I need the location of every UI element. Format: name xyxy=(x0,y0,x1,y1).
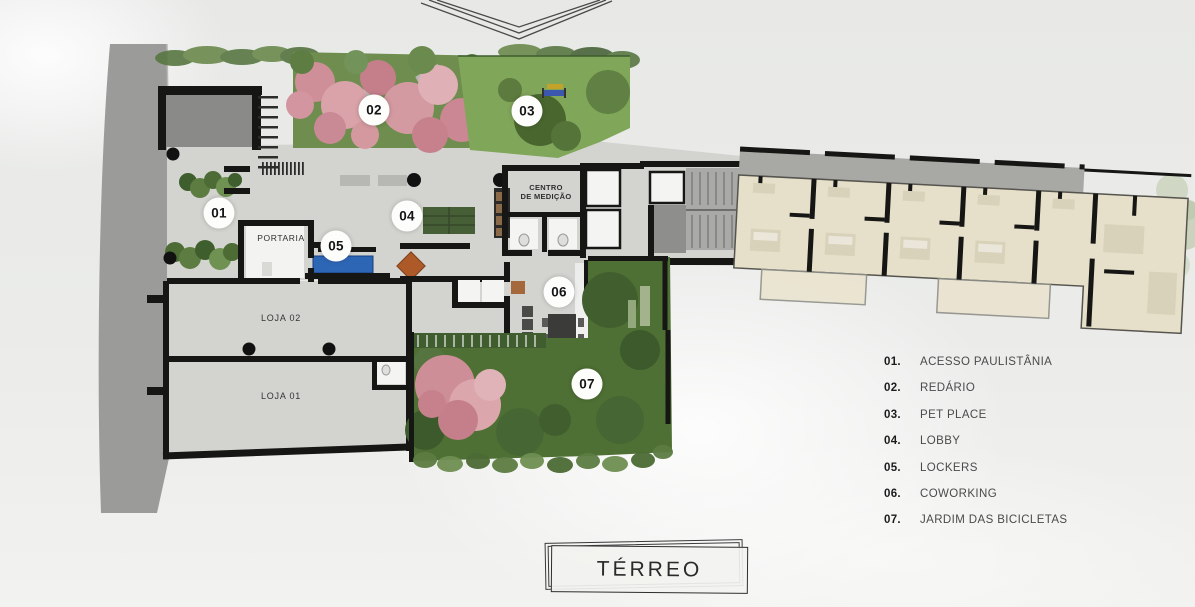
lobby-rug-icon xyxy=(423,207,475,234)
marker-03: 03 xyxy=(512,96,543,127)
portaria-label: PORTARIA xyxy=(257,233,304,243)
legend-label: LOCKERS xyxy=(920,462,978,474)
legend-item: 03. PET PLACE xyxy=(884,409,1068,435)
legend-item: 05. LOCKERS xyxy=(884,462,1068,488)
portaria-room xyxy=(238,220,314,282)
service-block xyxy=(158,86,262,150)
centro-medicao-line1: CENTRO xyxy=(521,183,572,192)
title-frame-inner: TÉRREO xyxy=(551,545,748,594)
legend-item: 07. JARDIM DAS BICICLETAS xyxy=(884,514,1068,540)
service-room xyxy=(372,359,406,390)
roof-outline-icon xyxy=(421,0,612,39)
legend-label: REDÁRIO xyxy=(920,382,975,394)
legend: 01. ACESSO PAULISTÂNIA 02. REDÁRIO 03. P… xyxy=(884,356,1068,541)
legend-item: 04. LOBBY xyxy=(884,435,1068,461)
centro-medicao-label: CENTRO DE MEDIÇÃO xyxy=(521,183,572,201)
legend-num: 05. xyxy=(884,462,920,474)
legend-label: JARDIM DAS BICICLETAS xyxy=(920,514,1068,526)
marker-07: 07 xyxy=(572,369,603,400)
loja01-label: LOJA 01 xyxy=(261,391,301,401)
legend-item: 02. REDÁRIO xyxy=(884,382,1068,408)
marker-02: 02 xyxy=(359,95,390,126)
centro-medicao-line2: DE MEDIÇÃO xyxy=(521,192,572,201)
legend-num: 04. xyxy=(884,435,920,447)
legend-num: 01. xyxy=(884,356,920,368)
loja02-label: LOJA 02 xyxy=(261,313,301,323)
legend-label: ACESSO PAULISTÂNIA xyxy=(920,356,1052,368)
floorplan-page: PORTARIA LOJA 02 LOJA 01 CENTRO DE MEDIÇ… xyxy=(0,0,1195,607)
legend-num: 07. xyxy=(884,514,920,526)
legend-item: 01. ACESSO PAULISTÂNIA xyxy=(884,356,1068,382)
legend-label: LOBBY xyxy=(920,435,960,447)
marker-01: 01 xyxy=(204,198,235,229)
legend-label: COWORKING xyxy=(920,488,997,500)
legend-num: 02. xyxy=(884,382,920,394)
marker-04: 04 xyxy=(392,201,423,232)
legend-num: 06. xyxy=(884,488,920,500)
floor-title-box: TÉRREO xyxy=(549,544,745,591)
marker-06: 06 xyxy=(544,277,575,308)
page-title: TÉRREO xyxy=(597,557,703,582)
legend-num: 03. xyxy=(884,409,920,421)
marker-05: 05 xyxy=(321,231,352,262)
apartments-strip xyxy=(732,149,1192,333)
legend-label: PET PLACE xyxy=(920,409,987,421)
legend-item: 06. COWORKING xyxy=(884,488,1068,514)
